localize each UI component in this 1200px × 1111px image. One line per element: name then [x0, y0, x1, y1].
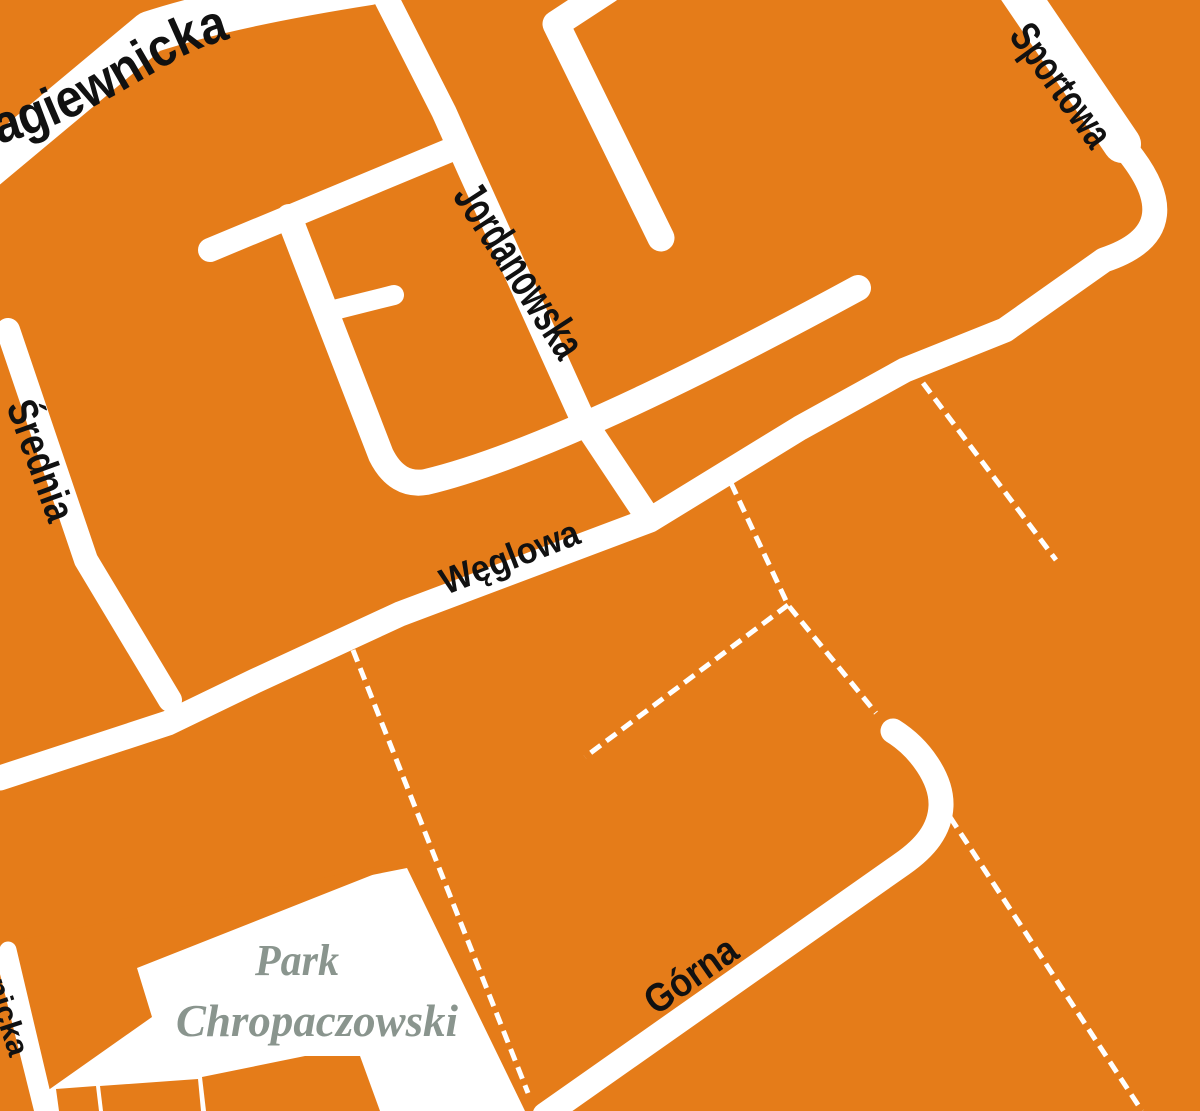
svg-text:Park: Park [254, 936, 339, 985]
svg-text:Chropaczowski: Chropaczowski [176, 995, 458, 1046]
